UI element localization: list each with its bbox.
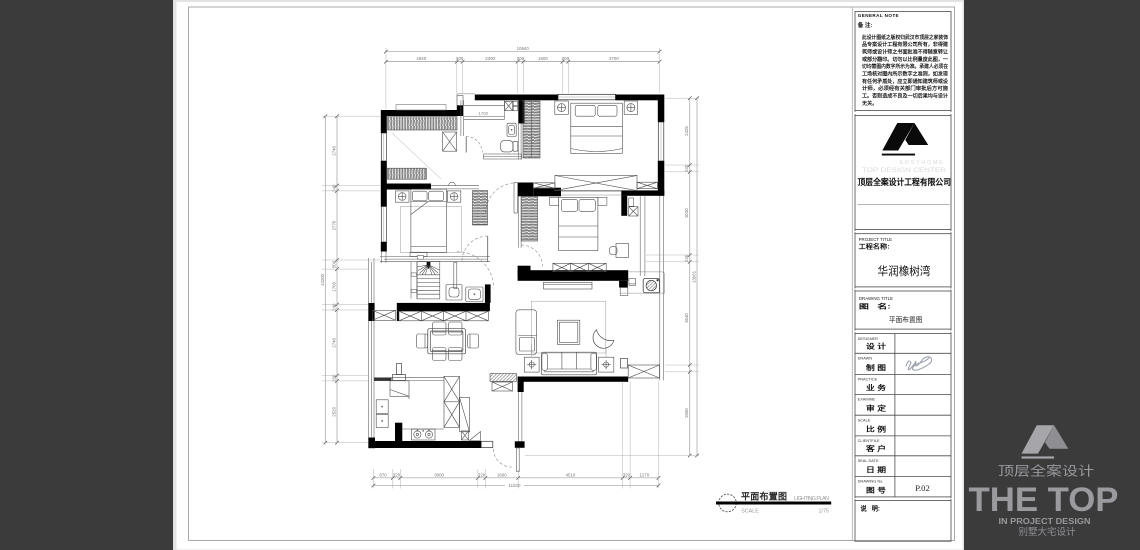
svg-text:3640: 3640 [684,313,689,323]
svg-text:3700: 3700 [609,56,619,61]
svg-text:500: 500 [331,260,336,268]
svg-text:1700: 1700 [331,281,336,291]
svg-text:2770: 2770 [331,220,336,230]
svg-text:2520: 2520 [331,406,336,416]
svg-text:DRAWING TITLE: DRAWING TITLE [859,296,893,301]
svg-text:业 务: 业 务 [866,383,887,392]
svg-text:比 例: 比 例 [866,424,887,433]
svg-text:DRAWN: DRAWN [858,356,873,361]
svg-text:设 计: 设 计 [866,342,887,351]
svg-text:TOP DESIGN CENTER: TOP DESIGN CENTER [862,167,947,174]
svg-text:备 注:: 备 注: [857,21,873,29]
svg-text:华润橡树湾: 华润橡树湾 [878,264,931,278]
svg-text:SCALE: SCALE [741,508,759,514]
svg-text:平面布置图: 平面布置图 [889,315,923,324]
svg-text:THE TOP: THE TOP [969,481,1119,519]
svg-text:1600: 1600 [497,472,507,477]
svg-text:240: 240 [331,303,336,311]
svg-text:11520: 11520 [509,483,521,488]
svg-text:SEAL DATE: SEAL DATE [858,458,879,463]
svg-text:870: 870 [379,472,387,477]
svg-text:客 户: 客 户 [865,444,886,453]
svg-text:320: 320 [393,472,401,477]
svg-text:320: 320 [623,472,631,477]
svg-text:2840: 2840 [416,56,426,61]
svg-text:无关。: 无关。 [861,100,877,107]
svg-text:说 明:: 说 明: [861,504,881,513]
svg-text:2425: 2425 [684,126,689,136]
svg-text:13200: 13200 [320,273,325,286]
svg-text:P.02: P.02 [915,483,930,493]
svg-text:240: 240 [684,254,689,262]
svg-text:DESIGNER: DESIGNER [858,336,879,341]
svg-text:别墅大宅设计: 别墅大宅设计 [1019,526,1076,538]
svg-text:2650: 2650 [684,408,689,418]
svg-text:工。否则造成不良及一切后果均与设计: 工。否则造成不良及一切后果均与设计 [862,93,948,100]
svg-text:品专案设计工程有限公司所有，非得建: 品专案设计工程有限公司所有，非得建 [862,41,949,48]
svg-text:320: 320 [478,472,486,477]
svg-text:CLIENTFILE: CLIENTFILE [858,438,880,443]
svg-text:IN PROJECT DESIGN: IN PROJECT DESIGN [999,516,1091,526]
svg-text:240: 240 [684,164,689,172]
svg-text:2740: 2740 [331,337,336,347]
svg-text:3030: 3030 [684,208,689,218]
svg-text:LIGHTING PLAN: LIGHTING PLAN [794,496,829,502]
svg-text:13061: 13061 [691,270,696,283]
svg-text:切均需图内数字所示为准。承建人必须在: 切均需图内数字所示为准。承建人必须在 [862,63,948,70]
svg-text:有任何矛盾处，应立即通知建筑师或设: 有任何矛盾处，应立即通知建筑师或设 [862,78,949,85]
svg-text:工程名称:: 工程名称: [859,242,890,251]
svg-text:2740: 2740 [331,145,336,155]
svg-text:平面布置图: 平面布置图 [741,491,787,502]
svg-text:PROJECT TITLE: PROJECT TITLE [859,237,893,242]
svg-text:计师，必须经有关部门审批后方可施: 计师，必须经有关部门审批后方可施 [862,85,949,92]
svg-text:2300: 2300 [485,56,495,61]
svg-text:SCALE: SCALE [858,417,871,422]
svg-text:1/75: 1/75 [819,508,830,514]
svg-text:ERSYHOME: ERSYHOME [900,160,945,166]
svg-text:工场核对图内所示数字之准则，如发现: 工场核对图内所示数字之准则，如发现 [862,71,948,78]
svg-text:顶层全案设计工程有限公司: 顶层全案设计工程有限公司 [858,176,952,187]
svg-text:制 图: 制 图 [866,363,887,372]
svg-text:PRACTICE: PRACTICE [858,377,878,382]
svg-text:GENERAL NOTE: GENERAL NOTE [858,13,899,18]
svg-text:1600: 1600 [538,56,548,61]
svg-text:DRAWING No.: DRAWING No. [858,479,884,484]
svg-text:1270: 1270 [639,472,649,477]
svg-text:图 号: 图 号 [866,485,887,494]
svg-text:图 名:: 图 名: [859,302,891,311]
svg-text:此设计图纸之版权归武汉市顶层之家装饰: 此设计图纸之版权归武汉市顶层之家装饰 [862,34,948,41]
svg-text:4510: 4510 [566,472,576,477]
svg-text:顶层全案设计: 顶层全案设计 [998,463,1094,478]
svg-text:日 期: 日 期 [866,465,887,474]
svg-text:或部分翻印。切勿以比例量度此图，一: 或部分翻印。切勿以比例量度此图，一 [862,56,948,63]
svg-text:筑师或设计师之书面批准不得随意转让: 筑师或设计师之书面批准不得随意转让 [861,49,948,56]
svg-text:1700: 1700 [479,111,489,116]
svg-text:审 定: 审 定 [866,404,887,413]
svg-text:10940: 10940 [517,46,530,51]
svg-text:EXAMINE: EXAMINE [858,397,876,402]
svg-text:3000: 3000 [434,472,444,477]
